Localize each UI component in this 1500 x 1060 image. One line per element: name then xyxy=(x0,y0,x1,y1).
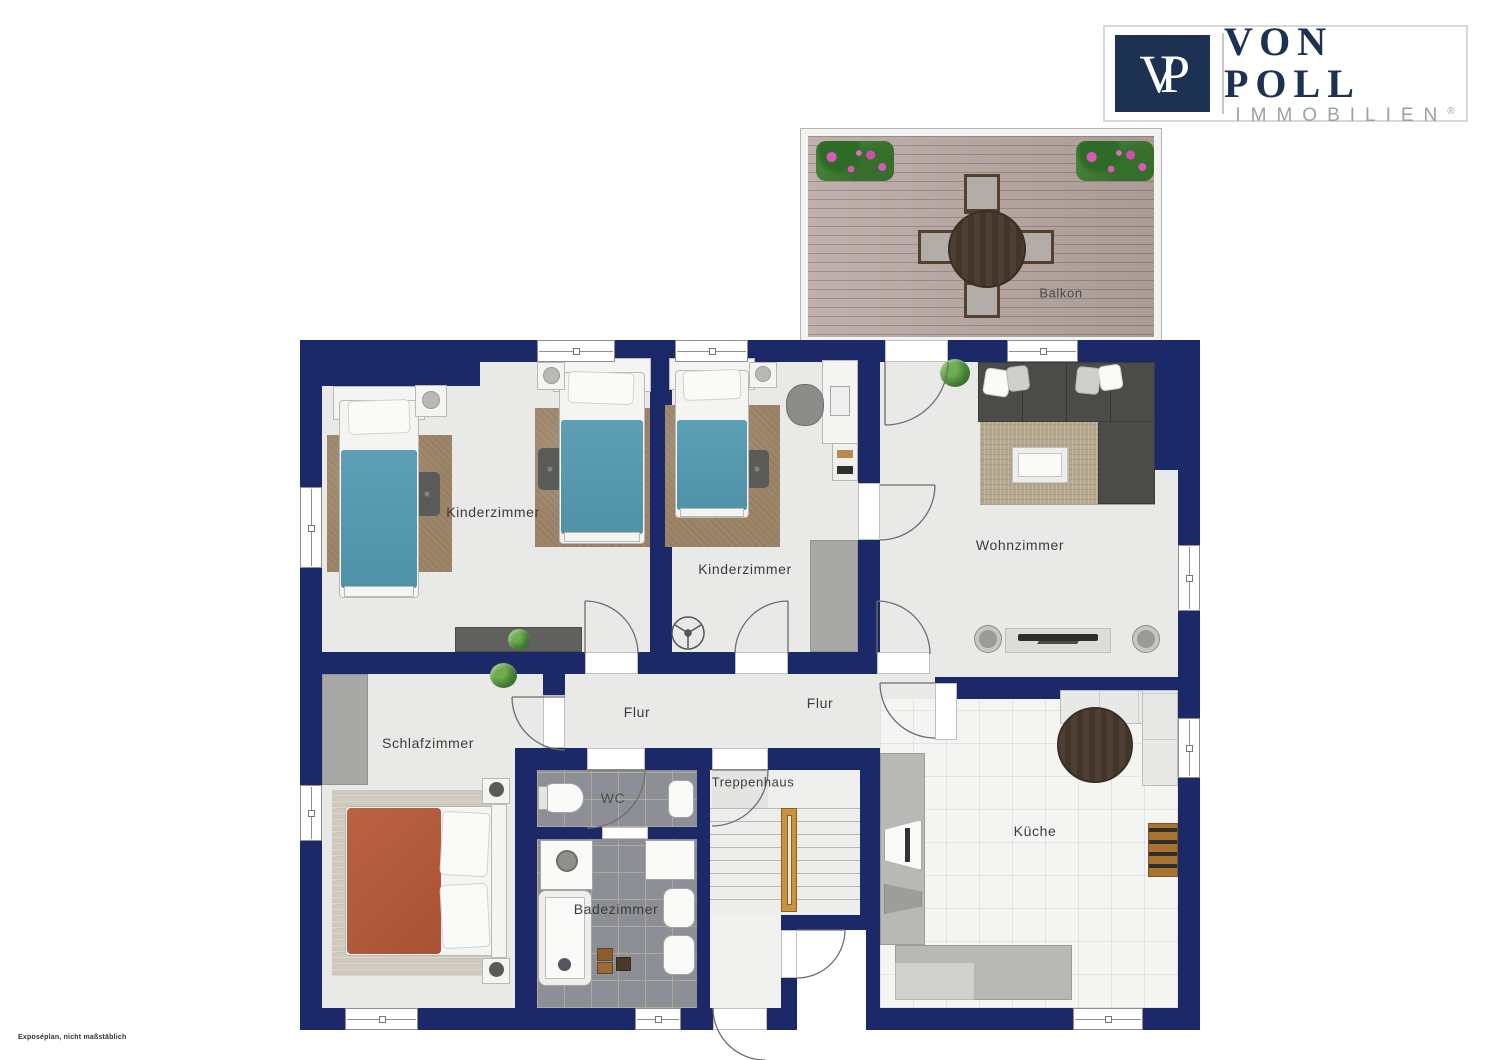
room-label-schlafzimmer: Schlafzimmer xyxy=(382,735,474,751)
room-label-wc: WC xyxy=(601,790,626,806)
room-label-kinderzimmer-2: Kinderzimmer xyxy=(698,561,792,577)
room-label-flur-2: Flur xyxy=(807,695,834,711)
ceiling-fan-icon xyxy=(672,617,704,649)
room-label-kueche: Küche xyxy=(1014,823,1057,839)
brand-name: VON POLL xyxy=(1224,21,1466,105)
disclaimer-text: Exposéplan, nicht maßstäblich xyxy=(18,1034,127,1041)
door-arc xyxy=(585,601,638,654)
door-arc xyxy=(880,683,935,738)
room-label-treppenhaus: Treppenhaus xyxy=(712,775,795,790)
door-arc xyxy=(880,485,935,540)
floorplan-page: Balkon xyxy=(0,0,1500,1060)
room-label-badezimmer: Badezimmer xyxy=(574,901,659,917)
door-arc xyxy=(512,697,565,750)
door-arc xyxy=(713,1008,765,1060)
room-label-flur-1: Flur xyxy=(624,704,651,720)
registered-mark: ® xyxy=(1447,106,1454,117)
door-arc xyxy=(797,930,845,978)
brand-division: IMMOBILIEN xyxy=(1235,105,1447,127)
door-arc xyxy=(885,362,948,425)
door-arc-layer xyxy=(0,0,1500,1060)
von-poll-logo: VP VON POLL IMMOBILIEN ® xyxy=(1103,25,1468,122)
door-arc xyxy=(877,601,930,654)
door-arc xyxy=(735,601,788,654)
vp-monogram-icon: VP xyxy=(1115,35,1210,112)
room-label-kinderzimmer-1: Kinderzimmer xyxy=(446,504,540,520)
room-label-wohnzimmer: Wohnzimmer xyxy=(976,537,1064,553)
